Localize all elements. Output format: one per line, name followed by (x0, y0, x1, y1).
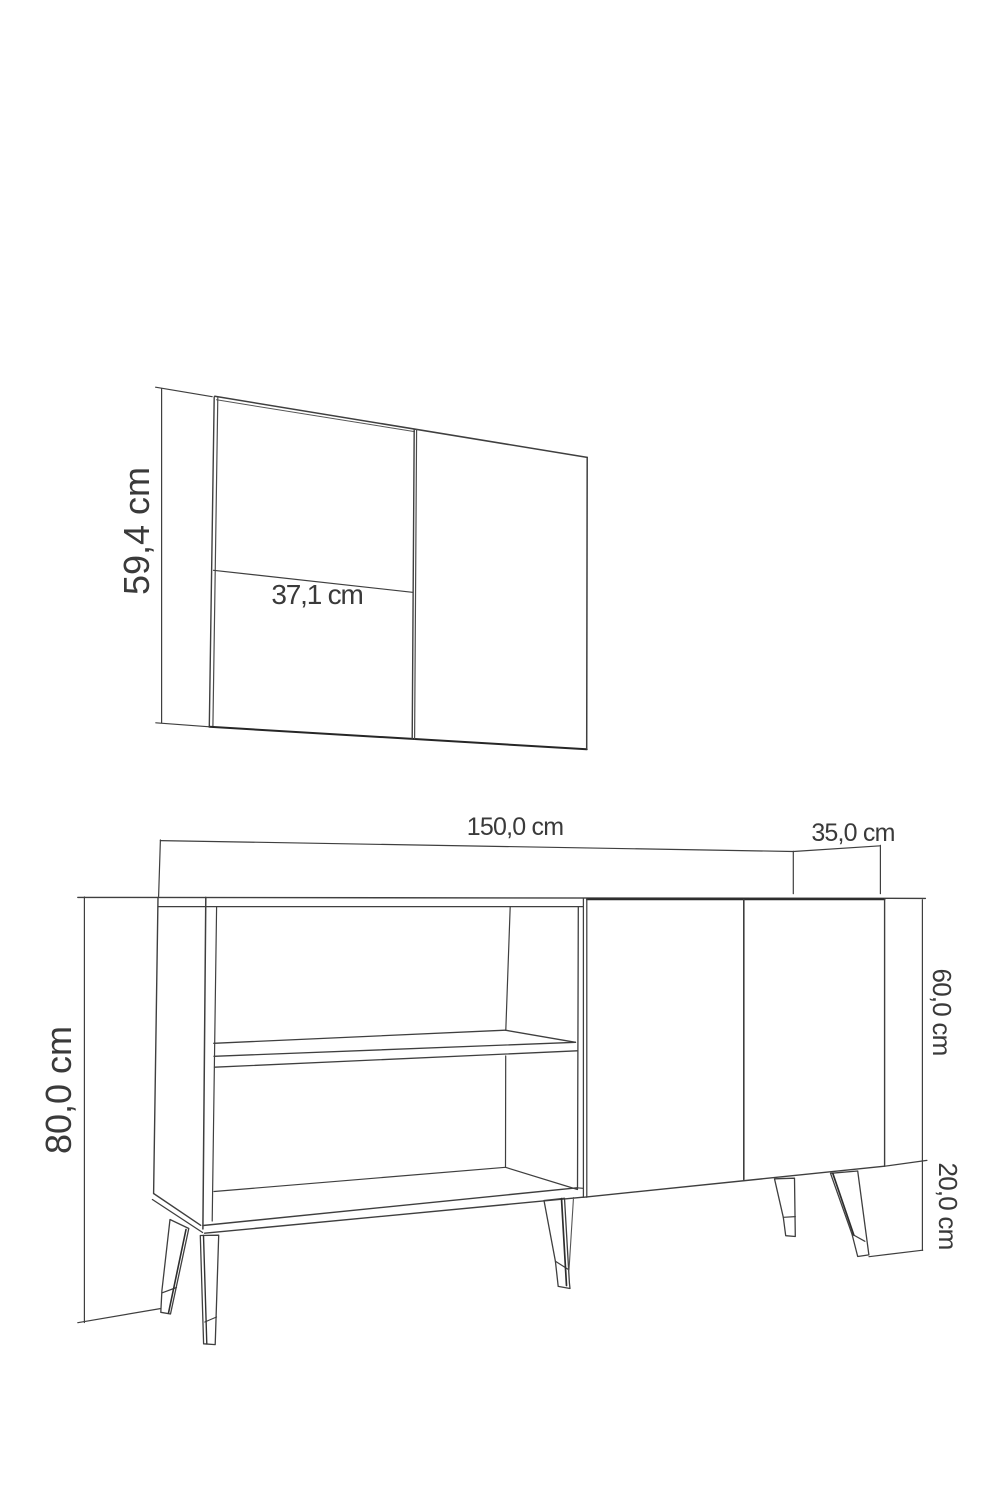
svg-text:35,0 cm: 35,0 cm (811, 819, 894, 847)
svg-text:80,0 cm: 80,0 cm (38, 1026, 79, 1154)
svg-text:60,0 cm: 60,0 cm (927, 969, 957, 1056)
svg-text:37,1 cm: 37,1 cm (271, 579, 362, 610)
svg-text:150,0 cm: 150,0 cm (467, 813, 563, 841)
svg-text:59,4 cm: 59,4 cm (116, 467, 157, 595)
svg-text:20,0 cm: 20,0 cm (933, 1163, 963, 1250)
